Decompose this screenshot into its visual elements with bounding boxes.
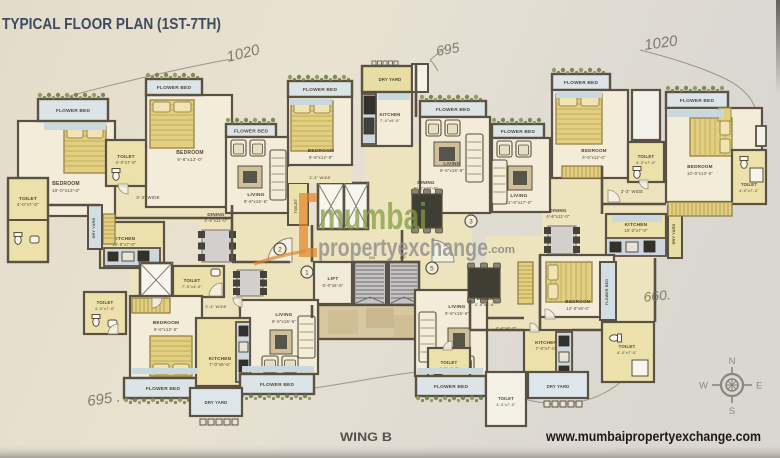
svg-text:7'-0"x9'-0": 7'-0"x9'-0" [380, 118, 401, 123]
svg-text:LIVING: LIVING [275, 312, 292, 318]
svg-text:FLOWER BED: FLOWER BED [501, 129, 536, 135]
svg-text:DINING: DINING [417, 180, 435, 185]
svg-text:BEDROOM: BEDROOM [581, 148, 606, 153]
svg-text:LIVING: LIVING [247, 192, 264, 198]
svg-text:E: E [756, 381, 762, 392]
svg-text:TOILET: TOILET [97, 300, 114, 305]
svg-text:2: 2 [278, 246, 282, 253]
svg-text:W: W [699, 381, 708, 392]
svg-text:S: S [729, 406, 735, 417]
svg-text:4'-6"x11'-0": 4'-6"x11'-0" [546, 214, 570, 219]
svg-text:.com: .com [488, 244, 515, 256]
svg-text:FLOWER BED: FLOWER BED [434, 384, 469, 390]
svg-text:BEDROOM: BEDROOM [176, 150, 204, 156]
svg-text:BEDROOM: BEDROOM [153, 320, 179, 326]
svg-text:WING B: WING B [340, 430, 392, 444]
svg-text:12'-0"x17'-0": 12'-0"x17'-0" [506, 200, 533, 205]
svg-text:9'-6"x12'-0": 9'-6"x12'-0" [177, 157, 203, 162]
svg-text:KITCHEN: KITCHEN [380, 112, 401, 117]
svg-text:7'-0"x4'-0": 7'-0"x4'-0" [182, 284, 203, 289]
svg-text:9'-6"x15'-6": 9'-6"x15'-6" [445, 311, 469, 316]
svg-text:DRY YARD: DRY YARD [205, 400, 228, 405]
svg-text:BEDROOM: BEDROOM [565, 299, 590, 304]
svg-text:DRY YARD: DRY YARD [379, 77, 402, 82]
svg-text:FLOWER BED: FLOWER BED [260, 382, 295, 388]
svg-text:4'-0"x7'-0": 4'-0"x7'-0" [496, 403, 516, 407]
svg-text:9'-6"x12'-0": 9'-6"x12'-0" [309, 155, 333, 160]
svg-text:FLOWER BED: FLOWER BED [564, 80, 599, 86]
svg-text:DRY YARD: DRY YARD [672, 224, 676, 245]
svg-text:www.mumbaipropertyexchange.com: www.mumbaipropertyexchange.com [545, 429, 761, 444]
svg-text:3'-3" WIDE: 3'-3" WIDE [205, 304, 227, 309]
svg-text:3: 3 [469, 218, 473, 225]
svg-text:660.: 660. [643, 286, 672, 305]
svg-text:LIFT: LIFT [328, 276, 339, 282]
svg-text:TOILET: TOILET [638, 154, 655, 159]
svg-text:BEDROOM: BEDROOM [687, 164, 712, 169]
svg-text:TOILET: TOILET [294, 198, 298, 213]
svg-text:LIVING: LIVING [510, 193, 527, 199]
svg-text:4'-0"x7'-0": 4'-0"x7'-0" [17, 202, 39, 207]
svg-text:FLOWER BED: FLOWER BED [146, 386, 181, 392]
svg-text:DINING: DINING [549, 208, 567, 213]
svg-text:1: 1 [305, 269, 309, 276]
svg-text:KITCHEN: KITCHEN [535, 340, 557, 345]
svg-text:BEDROOM: BEDROOM [52, 181, 80, 187]
svg-text:FLOWER BED: FLOWER BED [234, 129, 269, 135]
svg-text:LIVING: LIVING [448, 304, 465, 310]
svg-text:TOILET: TOILET [117, 154, 134, 159]
svg-text:DRY YARD: DRY YARD [92, 218, 96, 239]
svg-text:4'-0"x7'-0": 4'-0"x7'-0" [95, 306, 116, 311]
svg-text:TOILET: TOILET [184, 278, 201, 283]
svg-text:DINING: DINING [207, 212, 225, 217]
svg-text:TOILET: TOILET [741, 182, 757, 187]
svg-text:10'-0"x13'-0": 10'-0"x13'-0" [52, 188, 80, 193]
svg-text:4'-0"x7'-0": 4'-0"x7'-0" [617, 350, 638, 355]
svg-text:FLOWER BED: FLOWER BED [680, 98, 715, 104]
svg-text:DINING: DINING [477, 296, 494, 301]
svg-text:FLOWER BED: FLOWER BED [157, 85, 192, 91]
svg-text:4'-0"x7'-0": 4'-0"x7'-0" [636, 160, 657, 165]
svg-text:3'-3" WIDE: 3'-3" WIDE [621, 189, 643, 194]
svg-text:DRY YARD: DRY YARD [547, 384, 570, 389]
svg-text:LIVING: LIVING [443, 161, 460, 167]
svg-text:4'-0"x7'-0": 4'-0"x7'-0" [116, 160, 137, 165]
svg-text:mumbai: mumbai [319, 196, 427, 237]
svg-text:5'-0"x5'-6": 5'-0"x5'-6" [323, 283, 344, 288]
svg-text:TOILET: TOILET [498, 396, 514, 401]
svg-text:FLOWER BED: FLOWER BED [436, 107, 471, 113]
svg-text:TYPICAL FLOOR PLAN (1ST-7TH): TYPICAL FLOOR PLAN (1ST-7TH) [2, 16, 221, 33]
svg-text:9'-6"x15'-6": 9'-6"x15'-6" [440, 168, 464, 173]
svg-text:9'-6"x15'-6": 9'-6"x15'-6" [272, 319, 296, 324]
svg-text:4'-0"x7'-0": 4'-0"x7'-0" [739, 188, 759, 193]
svg-text:BEDROOM: BEDROOM [308, 148, 334, 154]
svg-text:N: N [729, 356, 736, 367]
svg-text:3'-3" WIDE: 3'-3" WIDE [136, 195, 159, 200]
svg-text:5: 5 [430, 265, 434, 272]
svg-text:propertyexchange: propertyexchange [318, 234, 488, 262]
svg-text:9'-6"x12'-0": 9'-6"x12'-0" [154, 327, 178, 332]
svg-text:TOILET: TOILET [441, 360, 458, 365]
svg-text:FLOWER BED: FLOWER BED [56, 108, 91, 114]
svg-text:2'-6"x8'-6": 2'-6"x8'-6" [475, 302, 496, 307]
svg-text:3'-3" WIDE: 3'-3" WIDE [309, 175, 331, 180]
svg-text:12'-0"x9'-0": 12'-0"x9'-0" [566, 306, 590, 311]
svg-text:10'-0"x7'-0": 10'-0"x7'-0" [112, 242, 136, 247]
svg-text:9'-6"x16'-6": 9'-6"x16'-6" [244, 199, 268, 204]
svg-text:10'-2"x7'-0": 10'-2"x7'-0" [624, 228, 648, 233]
svg-text:10'-0"x13'-0": 10'-0"x13'-0" [687, 171, 713, 176]
svg-text:7'-0"x9'-6": 7'-0"x9'-6" [209, 362, 231, 367]
svg-text:TOILET: TOILET [619, 344, 636, 349]
svg-text:FLOWER BED: FLOWER BED [605, 279, 609, 305]
svg-text:FLOWER BED: FLOWER BED [303, 87, 338, 93]
svg-text:7'-0"x7'-0": 7'-0"x7'-0" [536, 346, 557, 351]
svg-text:9'-6"x12'-0": 9'-6"x12'-0" [582, 155, 606, 160]
